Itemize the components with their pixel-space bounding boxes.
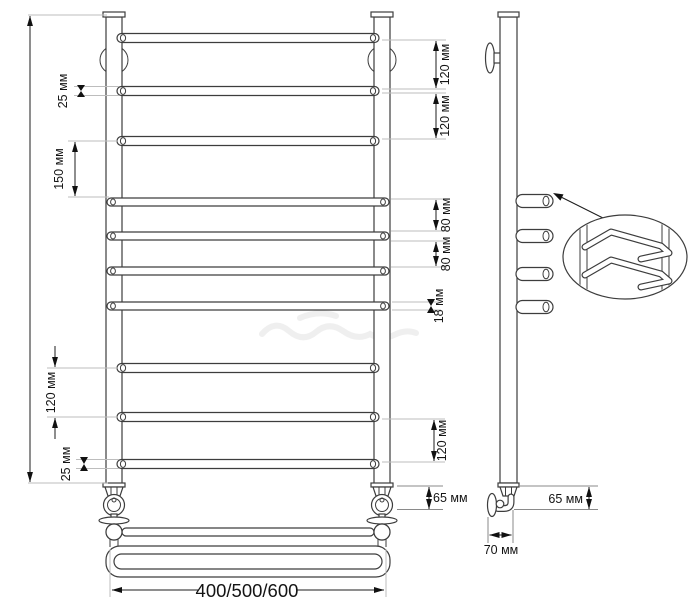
dim-label-mid-gap-2: 80 мм <box>439 237 453 272</box>
front-view <box>99 12 397 577</box>
watermark <box>262 313 416 337</box>
dim-label-valve-height-front: 65 мм <box>433 491 468 505</box>
dim-label-width-options: 400/500/600 <box>196 580 299 600</box>
side-post <box>500 17 517 483</box>
post-right-cap <box>371 12 393 17</box>
dim-label-valve-height-side: 65 мм <box>548 492 583 506</box>
dim-wall-offset: 70 мм <box>484 510 519 557</box>
dim-mid-gap-1: 80 мм <box>391 198 453 233</box>
dim-label-section-gap: 150 мм <box>52 148 66 190</box>
bars-top-group <box>117 34 379 146</box>
technical-drawing: 25 мм 150 мм 120 мм 25 мм 120 мм <box>0 0 700 600</box>
dim-tube-dia-mid: 18 мм <box>392 289 446 324</box>
dim-label-top-gap-1: 120 мм <box>438 44 452 86</box>
dim-label-tube-dia-bottom: 25 мм <box>59 447 73 482</box>
dim-lower-gap-right: 120 мм <box>382 419 449 462</box>
dim-top-gap-2: 120 мм <box>382 93 452 139</box>
dim-mid-gap-2: 80 мм <box>391 237 453 272</box>
side-view <box>486 12 554 517</box>
dim-valve-height-side: 65 мм <box>514 486 598 510</box>
side-wall-bracket <box>486 43 495 73</box>
dim-label-lower-gap-left: 120 мм <box>44 372 58 414</box>
dim-label-top-gap-2: 120 мм <box>438 95 452 137</box>
dim-label-lower-gap-right: 120 мм <box>435 420 449 462</box>
dim-label-mid-gap-1: 80 мм <box>439 198 453 233</box>
detail-circle <box>563 215 687 299</box>
bars-bottom-group <box>117 364 379 469</box>
side-post-cap <box>498 12 519 17</box>
dim-top-gap-1: 120 мм <box>382 40 452 89</box>
dim-valve-height-front: 65 мм <box>397 486 468 510</box>
side-bar-stubs <box>516 195 553 314</box>
dim-label-tube-dia-mid: 18 мм <box>432 289 446 324</box>
dim-label-tube-dia-top: 25 мм <box>56 74 70 109</box>
leader-arrow-icon <box>553 193 564 201</box>
dim-label-wall-offset: 70 мм <box>484 543 519 557</box>
bars-middle-group <box>107 198 389 310</box>
detail-callout <box>553 193 687 300</box>
bottom-shelf <box>106 524 390 577</box>
drawing-svg: 25 мм 150 мм 120 мм 25 мм 120 мм <box>0 0 700 600</box>
side-valve-fitting <box>488 483 520 517</box>
